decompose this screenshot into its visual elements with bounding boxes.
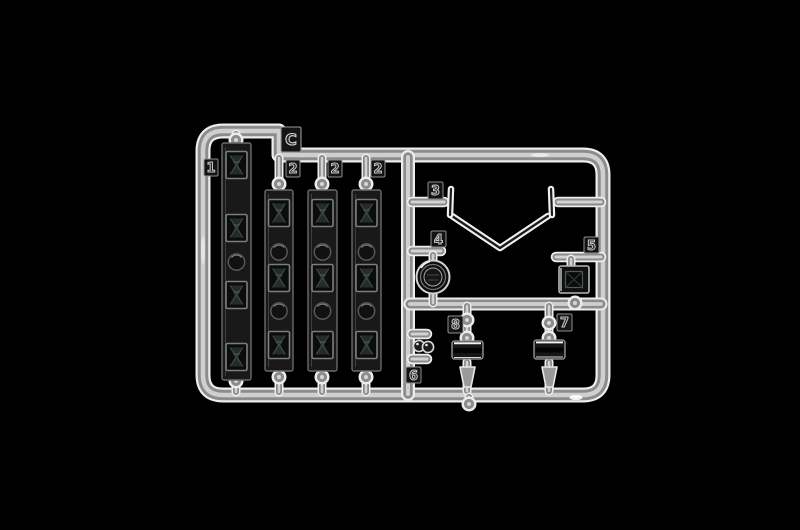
photo-stage: C 1 2 2 2 3 4 5 [0, 0, 800, 530]
tag-2c-text: 2 [373, 162, 382, 177]
part-strip-2c [352, 190, 381, 371]
tag-4-text: 4 [434, 233, 443, 248]
tag-3: 3 [428, 182, 443, 199]
tag-5: 5 [584, 237, 599, 254]
tag-8: 8 [448, 316, 463, 333]
tag-7: 7 [557, 314, 572, 331]
tag-6-text: 6 [409, 369, 418, 384]
tag-1: 1 [204, 159, 218, 176]
part-strip-2a [265, 190, 293, 371]
tag-5-text: 5 [587, 239, 596, 254]
tag-2a-text: 2 [288, 162, 297, 177]
sprue-frame [203, 131, 603, 405]
part-square-lens-5 [559, 266, 589, 293]
tag-letter-c-text: C [285, 130, 297, 149]
part-twin-lights-6 [413, 340, 433, 352]
tag-2b: 2 [328, 160, 342, 177]
tag-7-text: 7 [560, 316, 569, 331]
tag-4: 4 [431, 231, 446, 248]
specular-highlights [201, 153, 583, 400]
tag-letter-c: C [281, 127, 301, 152]
sprue-photo: C 1 2 2 2 3 4 5 [0, 0, 800, 530]
tag-6: 6 [406, 367, 421, 384]
part-strip-1 [222, 143, 251, 380]
tag-8-text: 8 [451, 318, 460, 333]
part-strip-2b [308, 190, 337, 371]
tag-2a: 2 [286, 160, 300, 177]
tag-2b-text: 2 [330, 162, 339, 177]
tag-3-text: 3 [431, 184, 440, 199]
tag-2c: 2 [371, 160, 385, 177]
tag-1-text: 1 [206, 161, 215, 176]
part-round-lens-4 [417, 261, 450, 294]
part-v-frame-3 [450, 189, 552, 248]
